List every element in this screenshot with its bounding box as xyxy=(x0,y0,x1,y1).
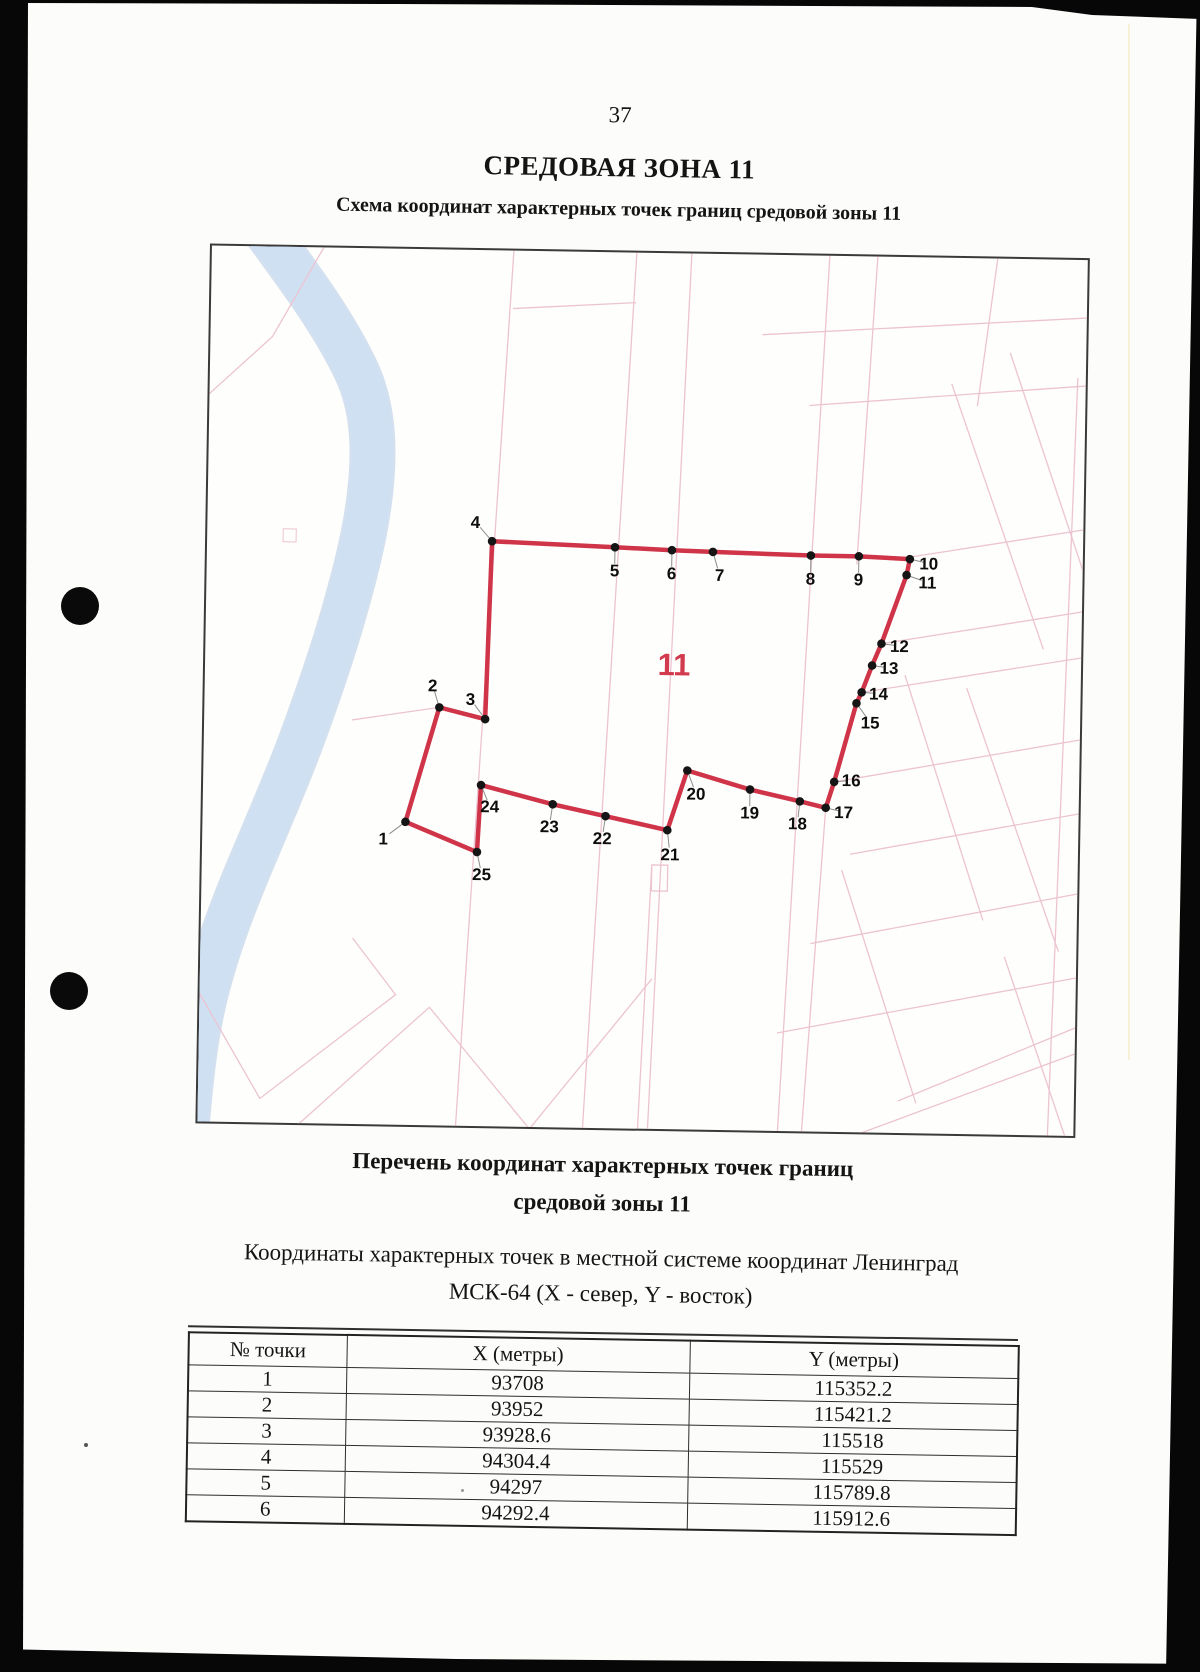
map-point-label: 19 xyxy=(740,803,759,822)
hole-punch-top xyxy=(61,587,99,625)
river-shape xyxy=(197,246,376,1136)
map-point-label: 18 xyxy=(788,814,807,833)
map-point-label: 23 xyxy=(540,817,559,836)
zone-boundary-layer: 1234567891011121314151617181920212223242… xyxy=(378,511,939,891)
cell: 4 xyxy=(187,1443,345,1472)
scan-speck xyxy=(461,1489,464,1492)
map-point-dot xyxy=(855,552,864,561)
map-point-dot xyxy=(709,548,718,557)
map-point-label: 4 xyxy=(471,513,481,532)
cell: 3 xyxy=(187,1417,345,1446)
map-point-label: 11 xyxy=(918,573,936,592)
cell: 1 xyxy=(188,1365,346,1394)
hole-punch-bottom xyxy=(50,972,88,1010)
coordinates-table: № точкиX (метры)Y (метры) 193708115352.2… xyxy=(185,1331,1020,1536)
map-point-label: 22 xyxy=(593,829,612,848)
page-number: 37 xyxy=(0,92,1200,139)
map-point-label: 10 xyxy=(919,554,938,573)
map-point-label: 17 xyxy=(834,803,853,822)
map-point-label: 16 xyxy=(842,771,861,790)
cell: 5 xyxy=(186,1469,344,1498)
map-point-label: 14 xyxy=(869,685,889,704)
cell: 6 xyxy=(186,1495,344,1524)
map-point-dot xyxy=(668,546,677,555)
map-point-dot xyxy=(807,551,816,560)
map-point-label: 20 xyxy=(686,784,705,803)
page-content: 37 СРЕДОВАЯ ЗОНА 11 Схема координат хара… xyxy=(0,0,1200,1672)
map-frame: 1234567891011121314151617181920212223242… xyxy=(195,244,1089,1138)
zone-number-label: 11 xyxy=(657,647,690,683)
column-header: № точки xyxy=(188,1332,347,1367)
map-point-label: 7 xyxy=(715,566,725,585)
scanned-page: 37 СРЕДОВАЯ ЗОНА 11 Схема координат хара… xyxy=(0,0,1200,1672)
map-subtitle: Схема координат характерных точек границ… xyxy=(0,188,1200,232)
coordinate-system-note: Координаты характерных точек в местной с… xyxy=(0,1230,1200,1323)
cell: 94292.4 xyxy=(344,1497,687,1529)
map-point-label: 9 xyxy=(854,570,864,589)
page-title: СРЕДОВАЯ ЗОНА 11 xyxy=(0,142,1200,194)
map-point-label: 5 xyxy=(610,561,620,580)
column-header: Y (метры) xyxy=(689,1341,1018,1379)
scan-speck xyxy=(84,1443,88,1447)
scan-streak xyxy=(1128,24,1130,1060)
map-point-label: 25 xyxy=(472,865,491,884)
coordinates-table-wrap: № точкиX (метры)Y (метры) 193708115352.2… xyxy=(185,1331,1018,1536)
map-canvas: 1234567891011121314151617181920212223242… xyxy=(197,246,1087,1136)
map-point-label: 3 xyxy=(466,690,476,709)
map-point-label: 21 xyxy=(660,845,679,864)
river-islet xyxy=(283,529,296,542)
map-point-label: 13 xyxy=(879,659,898,678)
cell: 115912.6 xyxy=(687,1503,1016,1535)
map-point-label: 6 xyxy=(667,564,677,583)
map-point-label: 24 xyxy=(480,797,500,816)
cell: 2 xyxy=(188,1391,346,1420)
map-point-label: 1 xyxy=(378,829,388,848)
list-heading: Перечень координат характерных точек гра… xyxy=(0,1136,1200,1233)
map-point-label: 15 xyxy=(861,713,880,732)
map-point-label: 2 xyxy=(428,676,438,695)
map-point-label: 8 xyxy=(806,569,816,588)
map-point-label: 12 xyxy=(890,637,909,656)
